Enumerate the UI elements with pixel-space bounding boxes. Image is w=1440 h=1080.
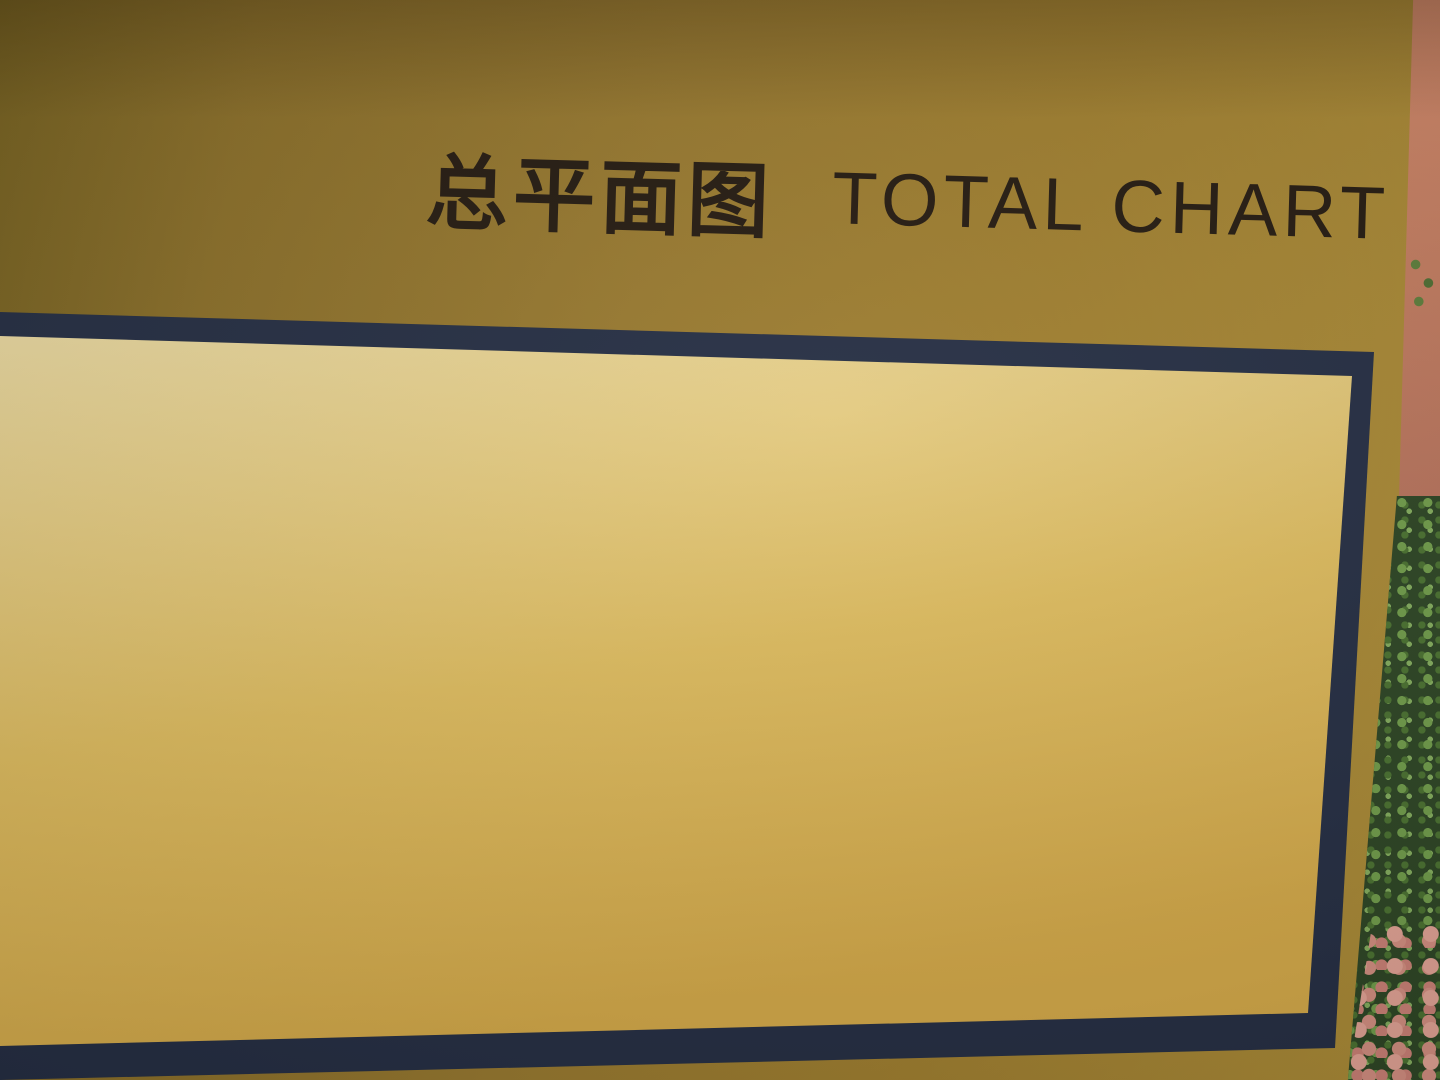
building-marker: 9# <box>808 869 837 898</box>
village-house-outline <box>870 946 903 976</box>
building-marker: 5# <box>446 894 475 923</box>
village-house-outline <box>374 980 407 1008</box>
building-marker: 50# <box>1141 436 1170 465</box>
building-marker: 19# <box>704 800 733 829</box>
building-marker: 2# <box>150 960 179 989</box>
building-marker: 30# <box>894 712 923 741</box>
legend-label: 坡度 <box>314 652 337 667</box>
legend-key: TS <box>276 637 314 652</box>
building-marker: 47# <box>901 483 930 512</box>
village-house-outline <box>502 954 535 984</box>
building-marker: 15# <box>252 806 281 835</box>
village-house-outline <box>1064 885 1094 918</box>
tree-dot <box>1240 560 1248 568</box>
title-chinese: 总平面图 <box>425 126 776 255</box>
legend-label: 覆土完成标高 <box>314 637 383 652</box>
village-house-outline <box>1174 957 1204 990</box>
legend-item: ◄—坡度 <box>276 652 536 667</box>
building-marker: 42# <box>1177 502 1206 531</box>
village-house-outline <box>778 993 811 1021</box>
village-house-outline <box>410 958 443 986</box>
building-marker: 22# <box>129 726 158 755</box>
village-house-outline <box>226 1006 259 1034</box>
building-marker: 26# <box>529 720 558 749</box>
village-house-outline <box>318 1003 351 1033</box>
tree-dot <box>600 662 608 670</box>
wall-plant <box>1406 246 1438 320</box>
village-house-outline <box>834 968 867 998</box>
tree-dot <box>960 700 968 708</box>
village-house-outline <box>1153 818 1186 847</box>
village-house-outline <box>1181 734 1214 763</box>
village-house-outline <box>962 988 995 1016</box>
village-house-outline <box>1202 959 1235 989</box>
building-marker: 18# <box>603 784 632 813</box>
legend-key: FL <box>276 592 314 607</box>
legend-key: TC <box>276 607 314 622</box>
village-house-outline <box>742 971 775 999</box>
tree-dot <box>480 762 488 770</box>
building-marker: 6# <box>532 888 561 917</box>
village-house-outline <box>410 1002 443 1030</box>
village-house-outline <box>870 990 903 1020</box>
building-marker: 24# <box>351 727 380 756</box>
building-marker: 36# <box>1106 602 1135 631</box>
village-house-outline <box>466 932 499 962</box>
building-marker: 31# <box>536 621 565 650</box>
tree-dot <box>1000 620 1008 628</box>
village-house-outline <box>42 1010 75 1038</box>
legend-label: 完成面标高 <box>314 592 372 607</box>
legend-key: ◄— <box>276 652 314 667</box>
building-marker: 21# <box>883 791 912 820</box>
building-marker: 34# <box>941 636 970 665</box>
village-house-outline <box>1238 937 1271 967</box>
building-marker: 13# <box>315 876 344 905</box>
village-house-outline <box>1078 843 1108 876</box>
village-house-outline <box>686 994 719 1024</box>
village-house-outline <box>1001 872 1034 901</box>
village-house-outline <box>926 966 959 994</box>
building-marker: 32# <box>627 620 656 649</box>
village-house-outline <box>1106 759 1136 792</box>
village-house-outline <box>1244 747 1274 780</box>
board-title: 总平面图 TOTAL CHART <box>425 126 1392 272</box>
legend-item: TW墙顶标高 <box>276 622 536 637</box>
village-house-outline <box>594 997 627 1025</box>
tree-dot <box>680 622 688 630</box>
village-house-outline <box>134 1007 167 1037</box>
village-house-outline <box>1018 919 1051 949</box>
building-marker: 41# <box>1090 522 1119 551</box>
building-marker: 20# <box>792 796 821 825</box>
village-house-outline <box>1202 873 1232 906</box>
tree-dot <box>950 762 958 770</box>
watermark-text: 青岛旭日装饰工程有限公司 <box>448 510 996 579</box>
village-house-outline <box>1146 940 1179 968</box>
building-marker: 4# <box>346 949 375 978</box>
village-house-outline <box>778 949 811 977</box>
building-marker: 48# <box>982 465 1011 494</box>
legend-item: TC牙石标高 <box>276 607 536 622</box>
signboard-photo: 总平面图 TOTAL CHART 1#2#3#4#5#6#7#8#9#10#11… <box>0 0 1440 1080</box>
village-house-outline <box>558 975 591 1003</box>
village-house-outline <box>1230 789 1260 822</box>
village-house-outline <box>1139 860 1172 889</box>
village-house-outline <box>686 950 719 980</box>
village-house-outline <box>6 988 39 1016</box>
village-house-outline <box>1054 985 1087 1015</box>
building-marker: 16# <box>424 804 453 833</box>
tree-dot <box>1265 595 1273 603</box>
village-house-outline <box>1216 831 1246 864</box>
building-marker: 27# <box>621 718 650 747</box>
legend-label: 牙石标高 <box>314 607 360 622</box>
village-house-outline <box>742 927 775 955</box>
building-marker: 17# <box>516 815 545 844</box>
tree-dot <box>486 700 494 708</box>
legend-key: TW <box>276 622 314 637</box>
building-marker: 23# <box>229 724 258 753</box>
village-house-outline <box>834 924 867 954</box>
building-marker: 3# <box>256 960 285 989</box>
building-marker: 35# <box>1020 622 1049 651</box>
legend-item: FL完成面标高 <box>276 592 536 607</box>
tree-dot <box>700 690 708 698</box>
building-marker: 29# <box>804 715 833 744</box>
side-road-north <box>74 346 100 616</box>
building-marker: 10# <box>890 862 919 891</box>
building-marker: 11# <box>86 877 115 906</box>
building-marker: 1# <box>62 954 91 983</box>
village-house-outline <box>1146 984 1179 1012</box>
map-legend: 图例 FL完成面标高TC牙石标高TW墙顶标高TS覆土完成标高◄—坡度 <box>276 564 536 667</box>
village-house-outline <box>594 953 627 981</box>
village-house-outline <box>650 928 683 958</box>
village-house-outline <box>898 981 928 1014</box>
village-house-outline <box>650 972 683 1002</box>
legend-item: TS覆土完成标高 <box>276 637 536 652</box>
building-marker: 14# <box>113 794 142 823</box>
building-marker: 12# <box>188 879 217 908</box>
village-house-outline <box>1167 776 1200 805</box>
building-marker: 8# <box>727 873 756 902</box>
village-house-outline <box>1238 981 1271 1011</box>
building-marker: 7# <box>640 877 669 906</box>
title-english: TOTAL CHART <box>831 155 1392 272</box>
building-marker: 25# <box>435 725 464 754</box>
legend-label: 墙顶标高 <box>314 622 360 637</box>
village-house-outline <box>1092 801 1122 834</box>
building-marker: 33# <box>740 643 769 672</box>
village-house-outline <box>466 976 499 1006</box>
village-house-outline <box>987 914 1020 943</box>
building-marker: 49# <box>1064 450 1093 479</box>
village-house-outline <box>502 998 535 1028</box>
building-marker: 28# <box>716 717 745 746</box>
tree-dot <box>44 700 52 708</box>
village-house-outline <box>558 931 591 959</box>
